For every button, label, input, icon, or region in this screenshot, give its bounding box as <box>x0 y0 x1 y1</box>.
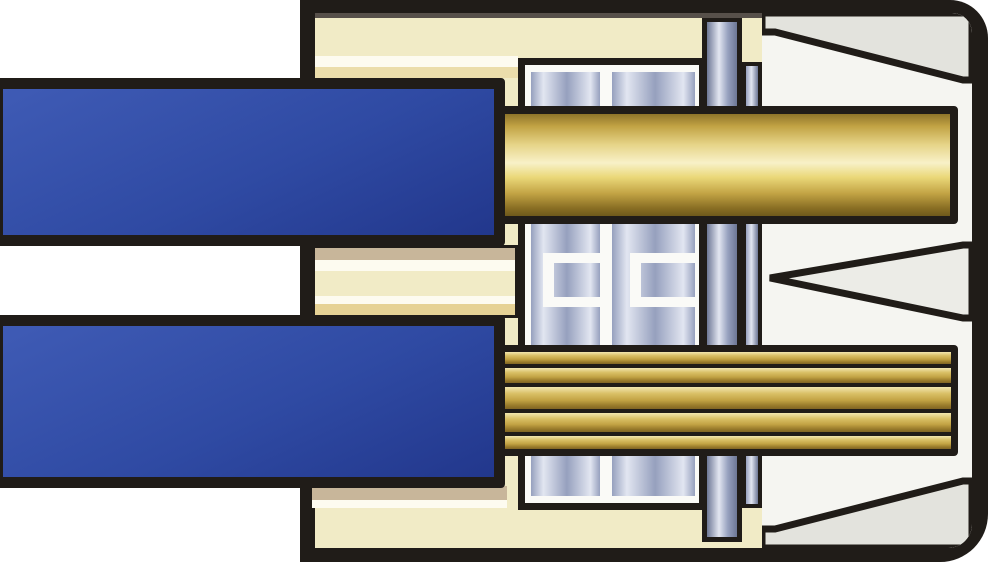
tongue-tan-stripe <box>315 248 515 260</box>
solid-core-wire-insulation <box>0 78 505 246</box>
solid-gold-conductor <box>494 106 958 224</box>
clamp-spring-motif <box>630 253 695 263</box>
tongue-gold-stripe <box>315 304 515 315</box>
stranded-wire-insulation <box>0 315 505 488</box>
connector-cross-section-illustration <box>0 0 1000 565</box>
wire-strand <box>496 413 951 432</box>
housing-bottom-tan-band <box>312 486 507 500</box>
clamp-spring-motif <box>543 253 600 263</box>
tongue-cream-band <box>315 271 515 296</box>
upper-funnel-shape <box>762 13 972 80</box>
housing-inner-shadow-line <box>315 13 767 18</box>
lower-funnel-shape <box>762 481 972 548</box>
housing-top-gold-stripe <box>315 67 518 78</box>
stranded-gold-conductor <box>496 345 958 456</box>
housing-top-highlight-stripe <box>315 56 518 67</box>
clamp-spring-motif <box>630 297 695 307</box>
wire-strand <box>496 387 951 409</box>
middle-guide-wedge <box>770 245 972 318</box>
housing-divider-tongue <box>303 245 525 318</box>
housing-bottom-highlight-stripe <box>312 500 507 508</box>
tongue-white-stripe-1 <box>315 260 515 271</box>
housing-cavity <box>762 13 972 548</box>
tongue-white-stripe-2 <box>315 296 515 304</box>
clamp-spring-motif <box>543 297 600 307</box>
wire-strand <box>496 368 951 383</box>
wire-strand <box>496 436 951 449</box>
release-pin <box>702 18 742 542</box>
wire-strand <box>496 352 951 364</box>
